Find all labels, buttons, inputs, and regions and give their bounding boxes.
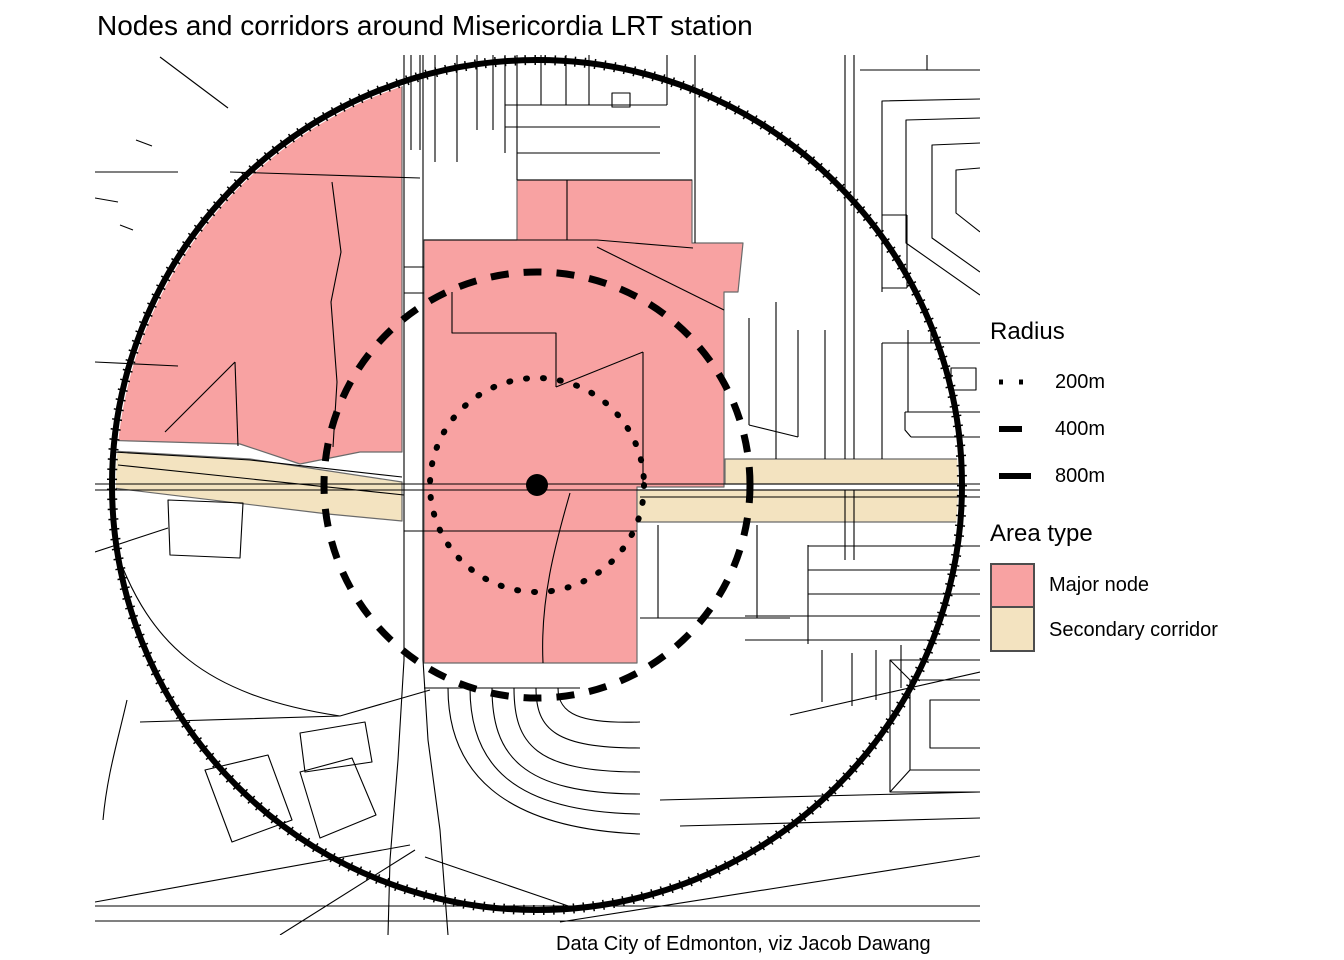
- map-svg: [0, 0, 1344, 960]
- corridor-east-lower: [637, 490, 980, 522]
- page-title: Nodes and corridors around Misericordia …: [97, 10, 753, 42]
- secondary-corridor-swatch: [990, 608, 1035, 652]
- legend-item-major-node: Major node: [990, 563, 1149, 607]
- legend-item-label: Major node: [1049, 574, 1149, 597]
- legend-item-label: Secondary corridor: [1049, 619, 1218, 642]
- legend-item-label: 200m: [1055, 371, 1105, 394]
- corridor-east-upper: [725, 459, 980, 484]
- major-node-upper-left: [95, 62, 402, 464]
- major-node-areas: [95, 62, 743, 663]
- solid-line-icon: [997, 468, 1033, 484]
- legend-area-type-heading: Area type: [990, 520, 1093, 548]
- corridor-west: [95, 450, 402, 521]
- station-dot: [526, 474, 548, 496]
- legend-item-400m: 400m: [990, 417, 1105, 441]
- dashed-line-icon: [997, 421, 1033, 437]
- area-fills: [95, 62, 980, 663]
- dotted-line-icon: [997, 374, 1033, 390]
- legend-item-200m: 200m: [990, 370, 1105, 394]
- legend-radius-heading: Radius: [990, 318, 1065, 346]
- data-credit-caption: Data City of Edmonton, viz Jacob Dawang: [556, 933, 931, 956]
- legend-item-secondary-corridor: Secondary corridor: [990, 608, 1218, 652]
- legend-item-800m: 800m: [990, 464, 1105, 488]
- legend-item-label: 800m: [1055, 465, 1105, 488]
- major-node-central: [424, 180, 743, 663]
- legend-item-label: 400m: [1055, 418, 1105, 441]
- figure: Nodes and corridors around Misericordia …: [0, 0, 1344, 960]
- major-node-swatch: [990, 563, 1035, 608]
